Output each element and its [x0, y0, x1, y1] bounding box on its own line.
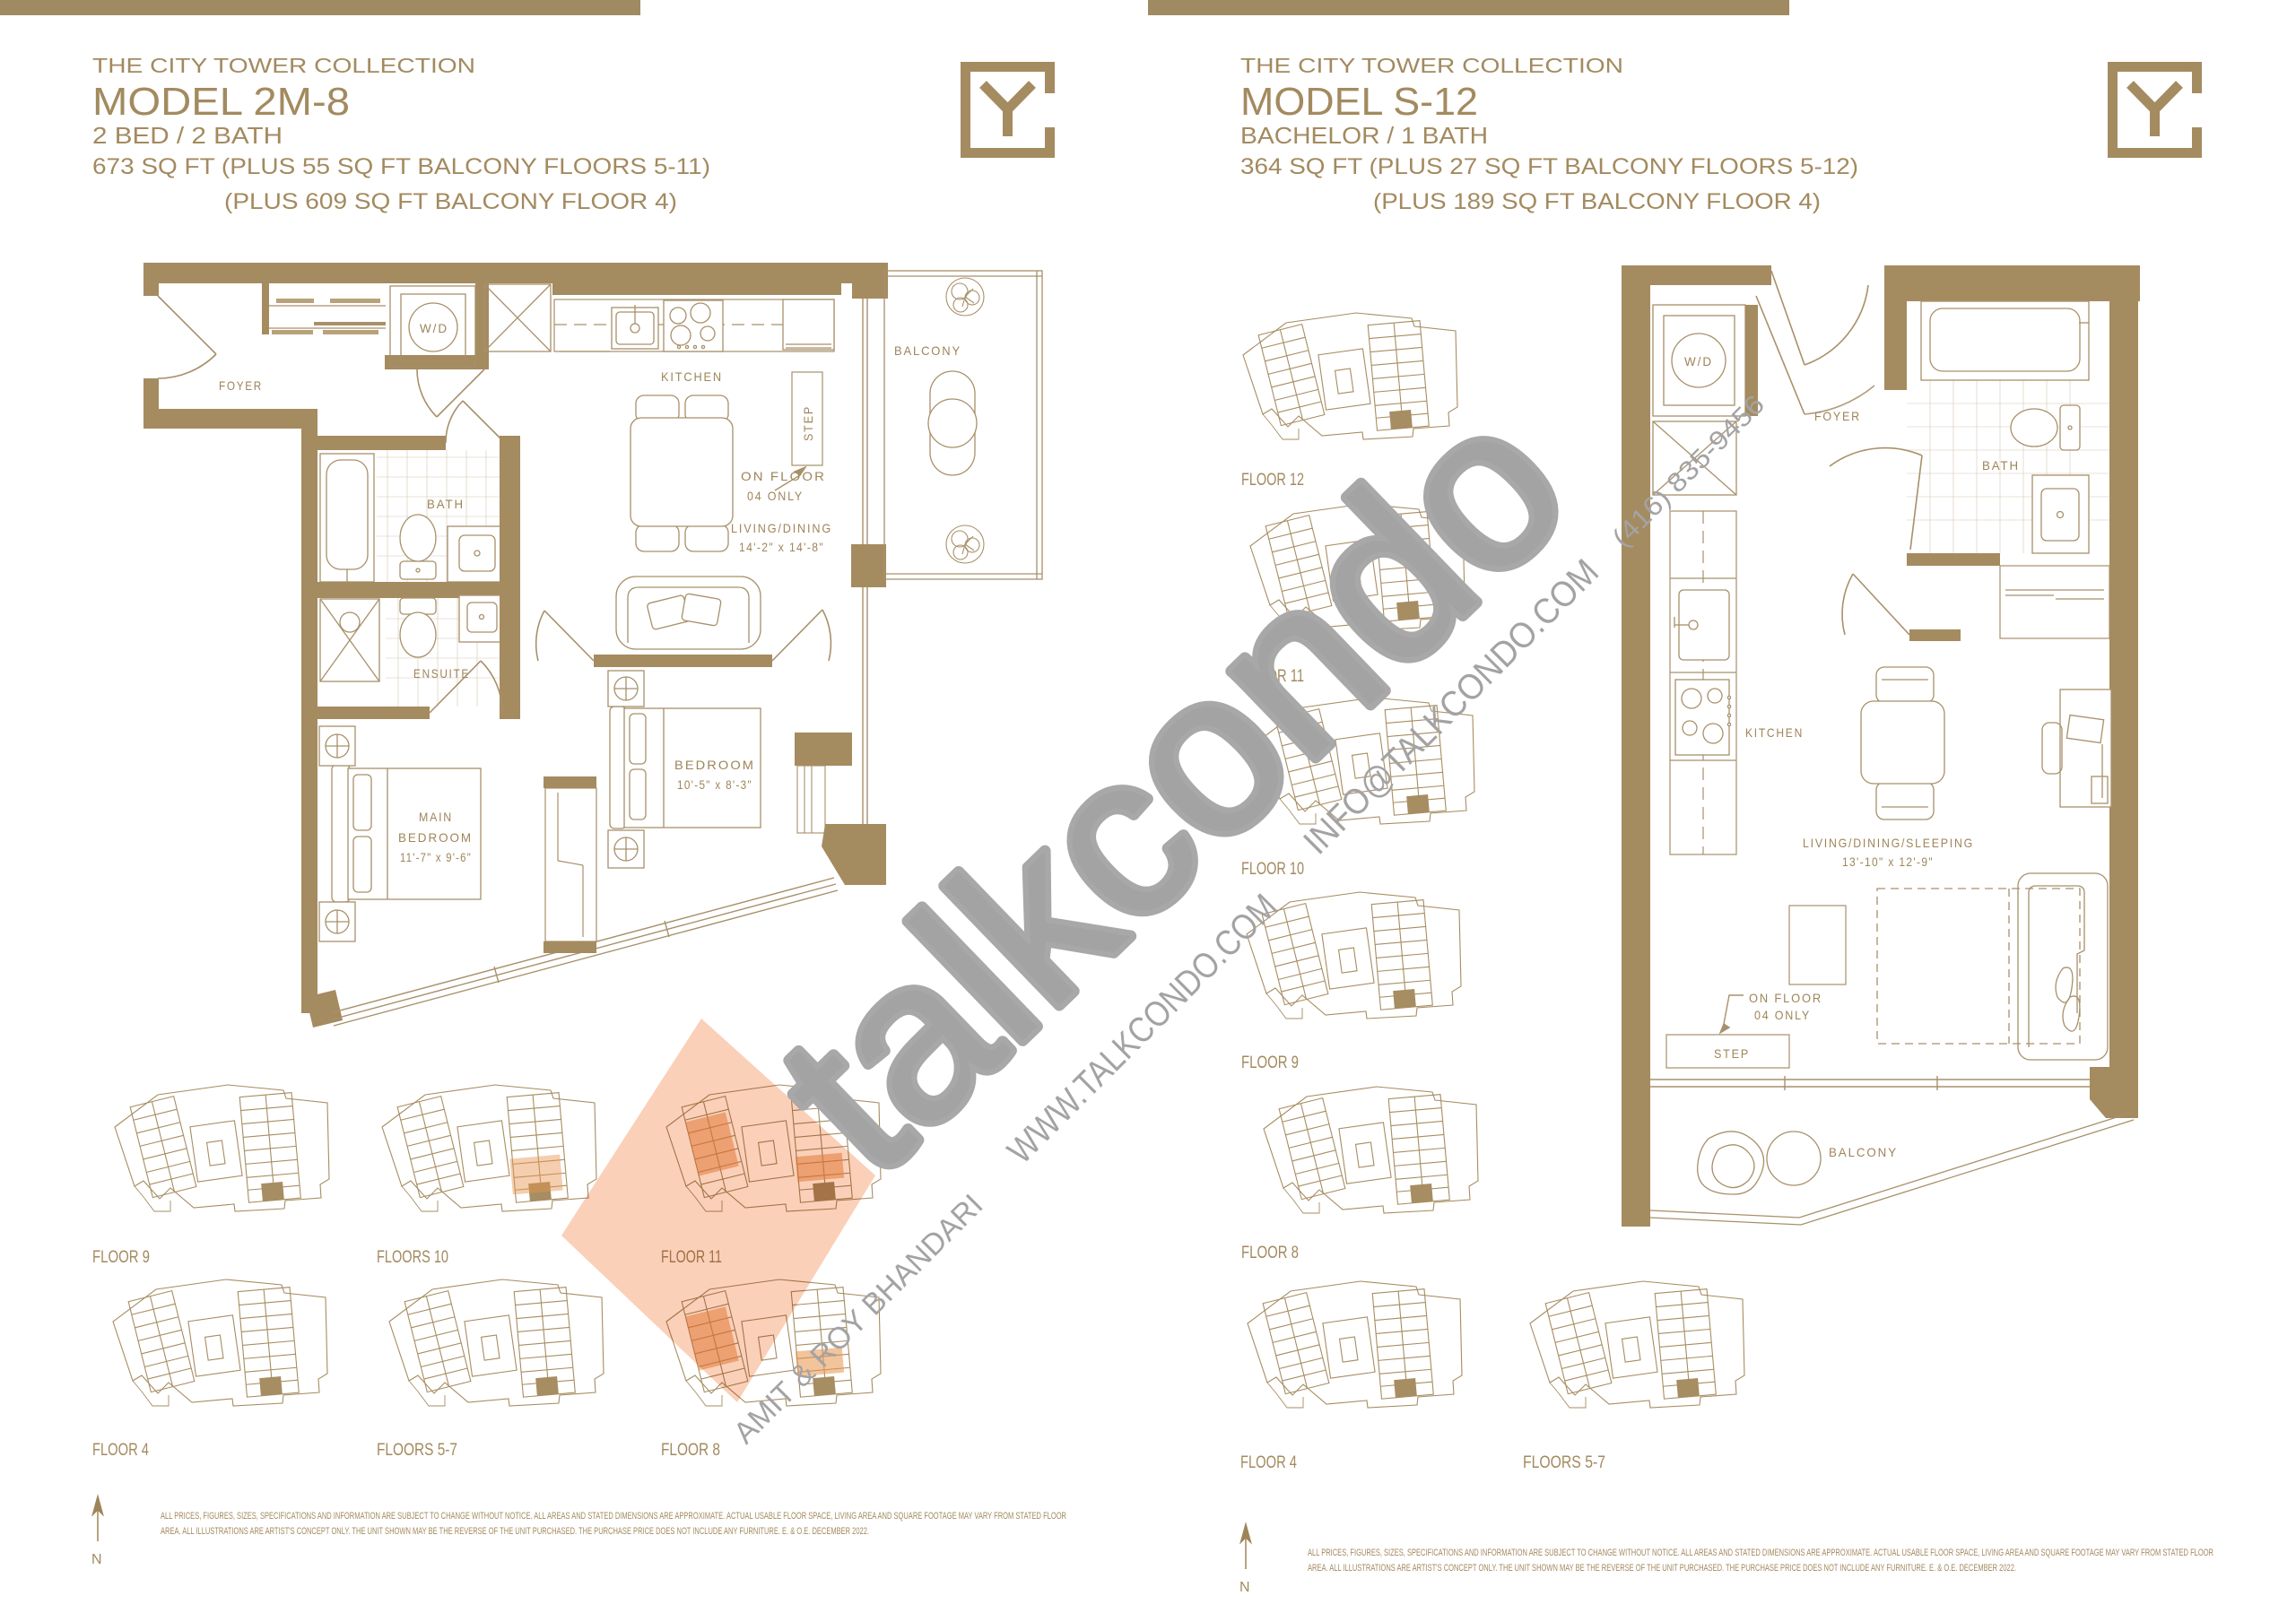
svg-text:N: N — [1239, 1580, 1251, 1595]
svg-text:N: N — [91, 1552, 103, 1567]
svg-text:13'-10" x 12'-9": 13'-10" x 12'-9" — [1842, 855, 1934, 869]
svg-text:BATH: BATH — [1982, 458, 2020, 473]
svg-text:10'-5" x 8'-3": 10'-5" x 8'-3" — [677, 778, 752, 792]
svg-text:BALCONY: BALCONY — [894, 343, 961, 358]
svg-text:04 ONLY: 04 ONLY — [1754, 1008, 1811, 1022]
svg-text:(PLUS 189 SQ FT BALCONY FLOOR: (PLUS 189 SQ FT BALCONY FLOOR 4) — [1373, 189, 1821, 214]
svg-text:LIVING/DINING: LIVING/DINING — [731, 521, 832, 535]
svg-text:14'-2" x 14'-8": 14'-2" x 14'-8" — [739, 541, 824, 554]
svg-text:ON FLOOR: ON FLOOR — [741, 469, 826, 483]
svg-text:(PLUS 609 SQ FT BALCONY FLOOR: (PLUS 609 SQ FT BALCONY FLOOR 4) — [224, 189, 677, 214]
svg-text:2 BED / 2 BATH: 2 BED / 2 BATH — [92, 122, 283, 149]
svg-text:BEDROOM: BEDROOM — [398, 830, 473, 845]
svg-text:FLOOR 8: FLOOR 8 — [1241, 1244, 1299, 1262]
svg-text:FLOOR 8: FLOOR 8 — [661, 1441, 720, 1460]
svg-text:STEP: STEP — [801, 405, 815, 441]
svg-text:FLOOR 12: FLOOR 12 — [1241, 471, 1304, 490]
svg-text:ALL PRICES, FIGURES, SIZES, SP: ALL PRICES, FIGURES, SIZES, SPECIFICATIO… — [1308, 1548, 2213, 1558]
svg-text:ENSUITE: ENSUITE — [413, 666, 470, 681]
svg-text:W/D: W/D — [420, 321, 448, 335]
svg-text:FOYER: FOYER — [219, 378, 263, 393]
svg-text:THE CITY TOWER COLLECTION: THE CITY TOWER COLLECTION — [92, 54, 475, 77]
svg-text:KITCHEN: KITCHEN — [661, 369, 723, 384]
svg-text:FLOOR 4: FLOOR 4 — [1240, 1453, 1297, 1472]
svg-text:FLOOR 9: FLOOR 9 — [1241, 1054, 1299, 1072]
svg-text:FLOORS 5-7: FLOORS 5-7 — [1523, 1453, 1605, 1472]
svg-text:MAIN: MAIN — [419, 810, 453, 824]
svg-text:11'-7" x 9'-6": 11'-7" x 9'-6" — [400, 851, 472, 864]
svg-text:KITCHEN: KITCHEN — [1745, 725, 1804, 740]
svg-text:AREA. ALL ILLUSTRATIONS ARE AR: AREA. ALL ILLUSTRATIONS ARE ARTIST'S CON… — [161, 1526, 869, 1537]
svg-text:W/D: W/D — [1684, 354, 1713, 369]
svg-text:FLOOR 4: FLOOR 4 — [92, 1441, 149, 1460]
svg-text:ON FLOOR: ON FLOOR — [1749, 991, 1822, 1005]
svg-text:BALCONY: BALCONY — [1829, 1145, 1898, 1159]
svg-text:ALL PRICES, FIGURES, SIZES, SP: ALL PRICES, FIGURES, SIZES, SPECIFICATIO… — [161, 1511, 1066, 1522]
svg-text:BACHELOR / 1 BATH: BACHELOR / 1 BATH — [1240, 122, 1488, 149]
svg-text:THE CITY TOWER COLLECTION: THE CITY TOWER COLLECTION — [1240, 54, 1623, 77]
svg-text:LIVING/DINING/SLEEPING: LIVING/DINING/SLEEPING — [1803, 836, 1974, 850]
svg-text:AREA. ALL ILLUSTRATIONS ARE AR: AREA. ALL ILLUSTRATIONS ARE ARTIST'S CON… — [1308, 1563, 2016, 1574]
svg-text:MODEL 2M-8: MODEL 2M-8 — [92, 80, 350, 124]
svg-text:673 SQ FT (PLUS 55 SQ FT BALCO: 673 SQ FT (PLUS 55 SQ FT BALCONY FLOORS … — [92, 154, 710, 179]
svg-text:BATH: BATH — [427, 497, 465, 511]
svg-text:FLOORS 10: FLOORS 10 — [377, 1248, 448, 1267]
svg-text:BEDROOM: BEDROOM — [674, 758, 755, 772]
svg-text:FLOOR 9: FLOOR 9 — [92, 1248, 150, 1267]
svg-text:MODEL S-12: MODEL S-12 — [1240, 80, 1478, 124]
svg-text:364 SQ FT (PLUS 27 SQ FT BALCO: 364 SQ FT (PLUS 27 SQ FT BALCONY FLOORS … — [1240, 154, 1858, 179]
svg-text:FLOORS 5-7: FLOORS 5-7 — [377, 1441, 457, 1460]
svg-text:STEP: STEP — [1714, 1046, 1750, 1061]
